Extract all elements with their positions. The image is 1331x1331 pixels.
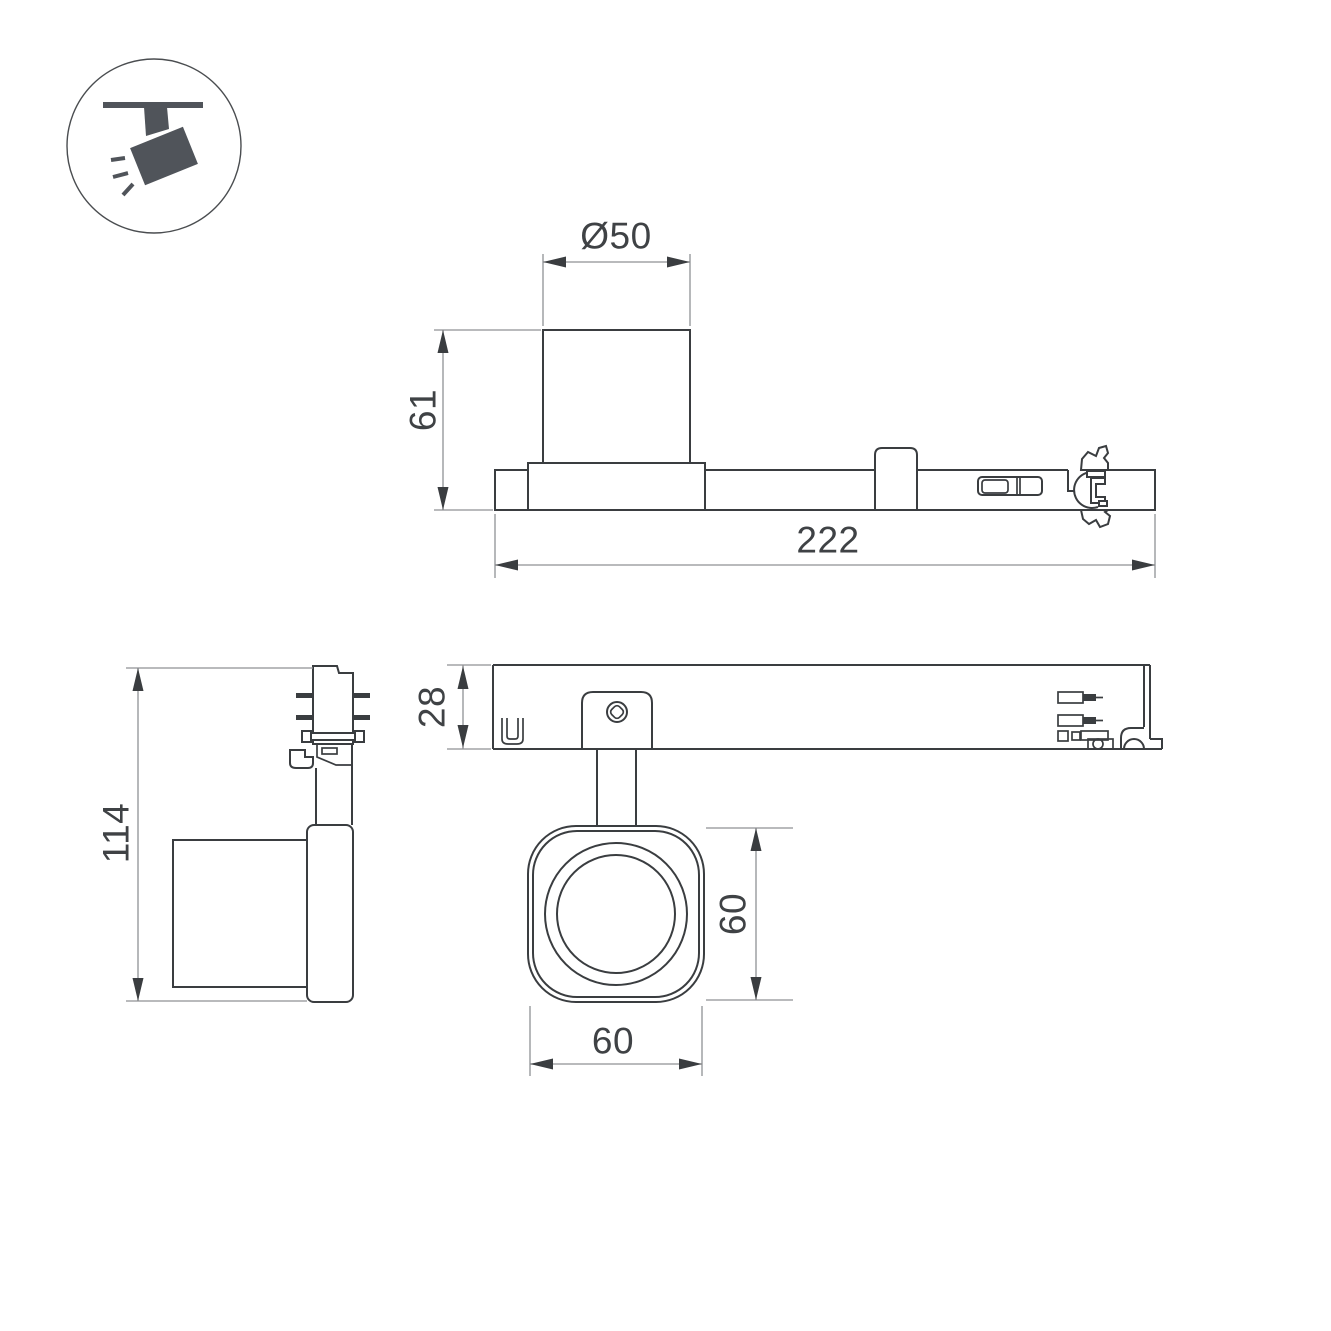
lamp-cylinder (543, 330, 690, 463)
dim-label-lamp-height: 61 (405, 389, 442, 431)
contact-pin (353, 715, 370, 720)
lamp-head-front (528, 826, 704, 1002)
pivot-block (875, 448, 917, 510)
plan-view (493, 665, 1162, 1002)
contact-pin (296, 693, 313, 698)
dim-label-track-depth: 28 (414, 686, 451, 728)
lamp-base (528, 463, 705, 510)
dim-label-head-height: 60 (715, 893, 752, 935)
lamp-body (307, 825, 353, 1002)
dim-label-head-width: 60 (592, 1023, 634, 1060)
dim-track-depth (447, 665, 491, 749)
contact-pin (353, 693, 370, 698)
technical-drawing: Ø50 61 222 114 28 60 60 (0, 0, 1331, 1331)
lamp-head-side (173, 840, 307, 987)
dim-label-track-length: 222 (796, 522, 859, 559)
side-elevation-view (495, 330, 1155, 527)
dim-label-lamp-diameter: Ø50 (580, 218, 651, 255)
drawing-canvas (0, 0, 1331, 1331)
lock-hook (290, 750, 313, 768)
front-elevation-view (173, 666, 370, 1002)
light-ray-1 (111, 158, 125, 160)
ceiling-track-spotlight-icon (67, 59, 241, 233)
dim-lamp-diameter (543, 254, 690, 326)
mount-plate (582, 692, 652, 749)
dim-label-overall-height: 114 (98, 803, 135, 864)
contact-pin (296, 715, 313, 720)
